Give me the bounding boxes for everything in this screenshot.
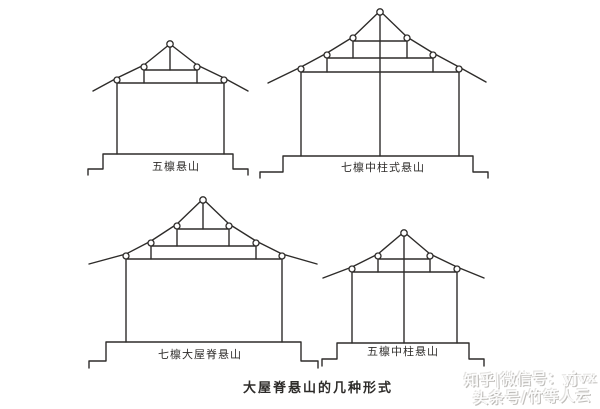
five-purlin-center-column-gable-left-rafter — [323, 232, 404, 278]
five-purlin-gable-purlin-joint-icon — [141, 64, 147, 70]
seven-purlin-big-ridge-gable-left-rafter — [89, 199, 203, 264]
seven-purlin-center-column-gable-purlin-joint-icon — [404, 35, 410, 41]
five-purlin-center-column-gable-right-rafter — [404, 232, 484, 278]
five-purlin-gable-left-rafter — [93, 44, 170, 91]
five-purlin-gable-purlin-joint-icon — [167, 41, 173, 47]
seven-purlin-big-ridge-gable-purlin-joint-icon — [174, 223, 180, 229]
figure-caption-five-purlin-center-column-gable: 五檩中柱悬山 — [367, 346, 439, 358]
seven-purlin-big-ridge-gable-right-rafter — [203, 199, 317, 264]
seven-purlin-center-column-gable-purlin-joint-icon — [350, 35, 356, 41]
five-purlin-gable-purlin-joint-icon — [221, 77, 227, 83]
five-purlin-center-column-gable-purlin-joint-icon — [349, 266, 355, 272]
seven-purlin-center-column-gable-purlin-joint-icon — [377, 9, 383, 15]
figure-caption-five-purlin-gable: 五檩悬山 — [152, 161, 200, 173]
five-purlin-center-column-gable-purlin-joint-icon — [454, 266, 460, 272]
roof-structure-diagram-canvas — [0, 0, 600, 409]
five-purlin-center-column-gable-purlin-joint-icon — [401, 230, 407, 236]
seven-purlin-center-column-gable-purlin-joint-icon — [298, 66, 304, 72]
five-purlin-gable-purlin-joint-icon — [194, 64, 200, 70]
figure-seven-purlin-big-ridge-gable — [89, 197, 318, 368]
diagram-title: 大屋脊悬山的几种形式 — [243, 382, 393, 396]
figure-five-purlin-gable — [88, 41, 248, 175]
five-purlin-center-column-gable-purlin-joint-icon — [375, 253, 381, 259]
seven-purlin-big-ridge-gable-purlin-joint-icon — [148, 240, 154, 246]
seven-purlin-big-ridge-gable-purlin-joint-icon — [200, 197, 206, 203]
diagram-page: 五檩悬山 七檩中柱式悬山 七檩大屋脊悬山 五檩中柱悬山 大屋脊悬山的几种形式 知… — [0, 0, 600, 409]
seven-purlin-big-ridge-gable-purlin-joint-icon — [123, 253, 129, 259]
seven-purlin-center-column-gable-purlin-joint-icon — [324, 52, 330, 58]
watermark-line2: 头条号/竹等人云 — [473, 384, 592, 408]
seven-purlin-center-column-gable-purlin-joint-icon — [456, 66, 462, 72]
seven-purlin-big-ridge-gable-purlin-joint-icon — [226, 223, 232, 229]
figure-caption-seven-purlin-center-column-gable: 七檩中柱式悬山 — [341, 162, 425, 174]
figure-caption-seven-purlin-big-ridge-gable: 七檩大屋脊悬山 — [158, 349, 242, 361]
five-purlin-gable-right-rafter — [170, 44, 248, 91]
seven-purlin-big-ridge-gable-purlin-joint-icon — [253, 240, 259, 246]
seven-purlin-big-ridge-gable-purlin-joint-icon — [279, 253, 285, 259]
five-purlin-gable-purlin-joint-icon — [114, 77, 120, 83]
five-purlin-center-column-gable-purlin-joint-icon — [427, 253, 433, 259]
seven-purlin-center-column-gable-purlin-joint-icon — [430, 52, 436, 58]
figure-seven-purlin-center-column-gable — [260, 9, 488, 178]
